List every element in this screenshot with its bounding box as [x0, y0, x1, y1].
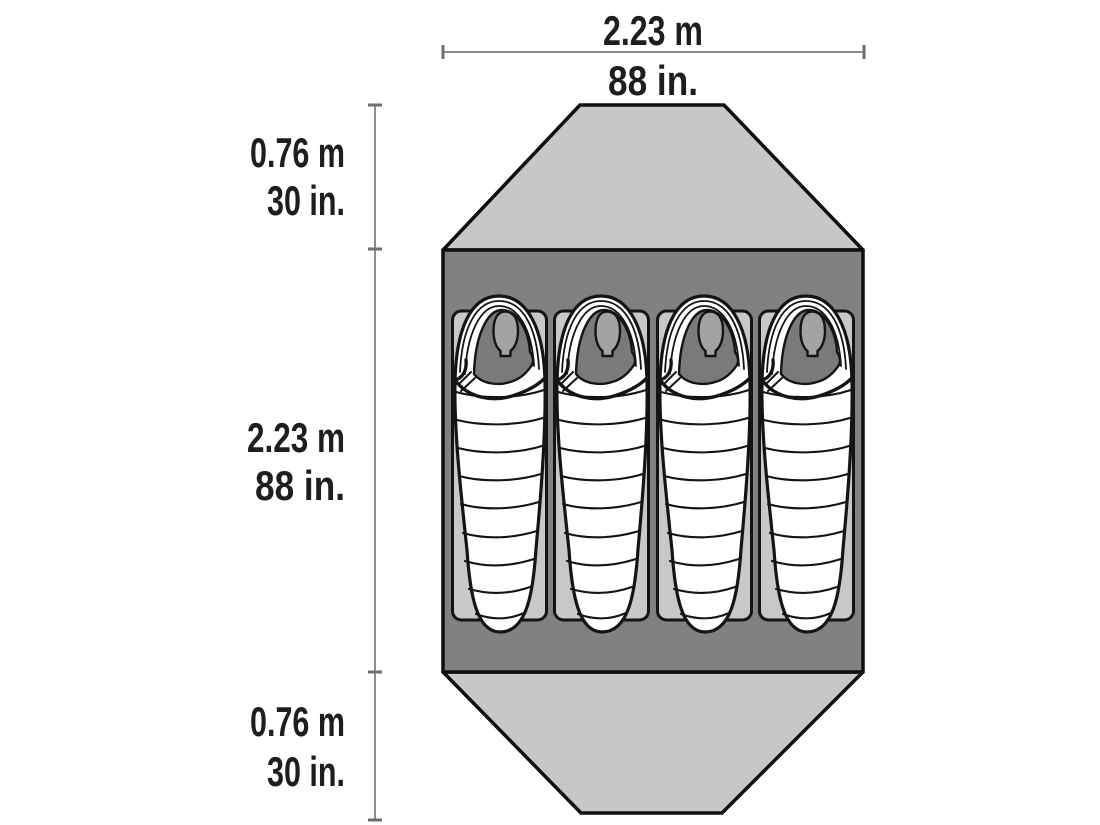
- front-vestibule-shape: [443, 105, 863, 250]
- sleeping-bag-2: [555, 296, 649, 632]
- width-label-metric: 2.23 m: [603, 7, 703, 54]
- rear-vestibule-shape: [443, 672, 863, 813]
- sleeping-bag-3: [658, 296, 752, 632]
- sleeping-bag-4: [760, 296, 854, 632]
- front-vestibule-label-imperial: 30 in.: [267, 177, 345, 224]
- length-dimension: 0.76 m 30 in. 2.23 m 88 in. 0.76 m 30 in…: [247, 105, 382, 820]
- width-label-imperial: 88 in.: [608, 57, 698, 104]
- tent-floor-plan-diagram: 2.23 m 88 in. 0.76 m 30 in. 2.23 m 88 in…: [0, 0, 1100, 825]
- width-dimension: 2.23 m 88 in.: [443, 7, 864, 104]
- length-label-imperial: 88 in.: [255, 462, 345, 509]
- length-label-metric: 2.23 m: [247, 414, 345, 461]
- rear-vestibule-label-metric: 0.76 m: [250, 698, 345, 745]
- front-vestibule-label-metric: 0.76 m: [250, 129, 345, 176]
- rear-vestibule-label-imperial: 30 in.: [267, 748, 345, 795]
- sleeping-bag-1: [453, 296, 547, 632]
